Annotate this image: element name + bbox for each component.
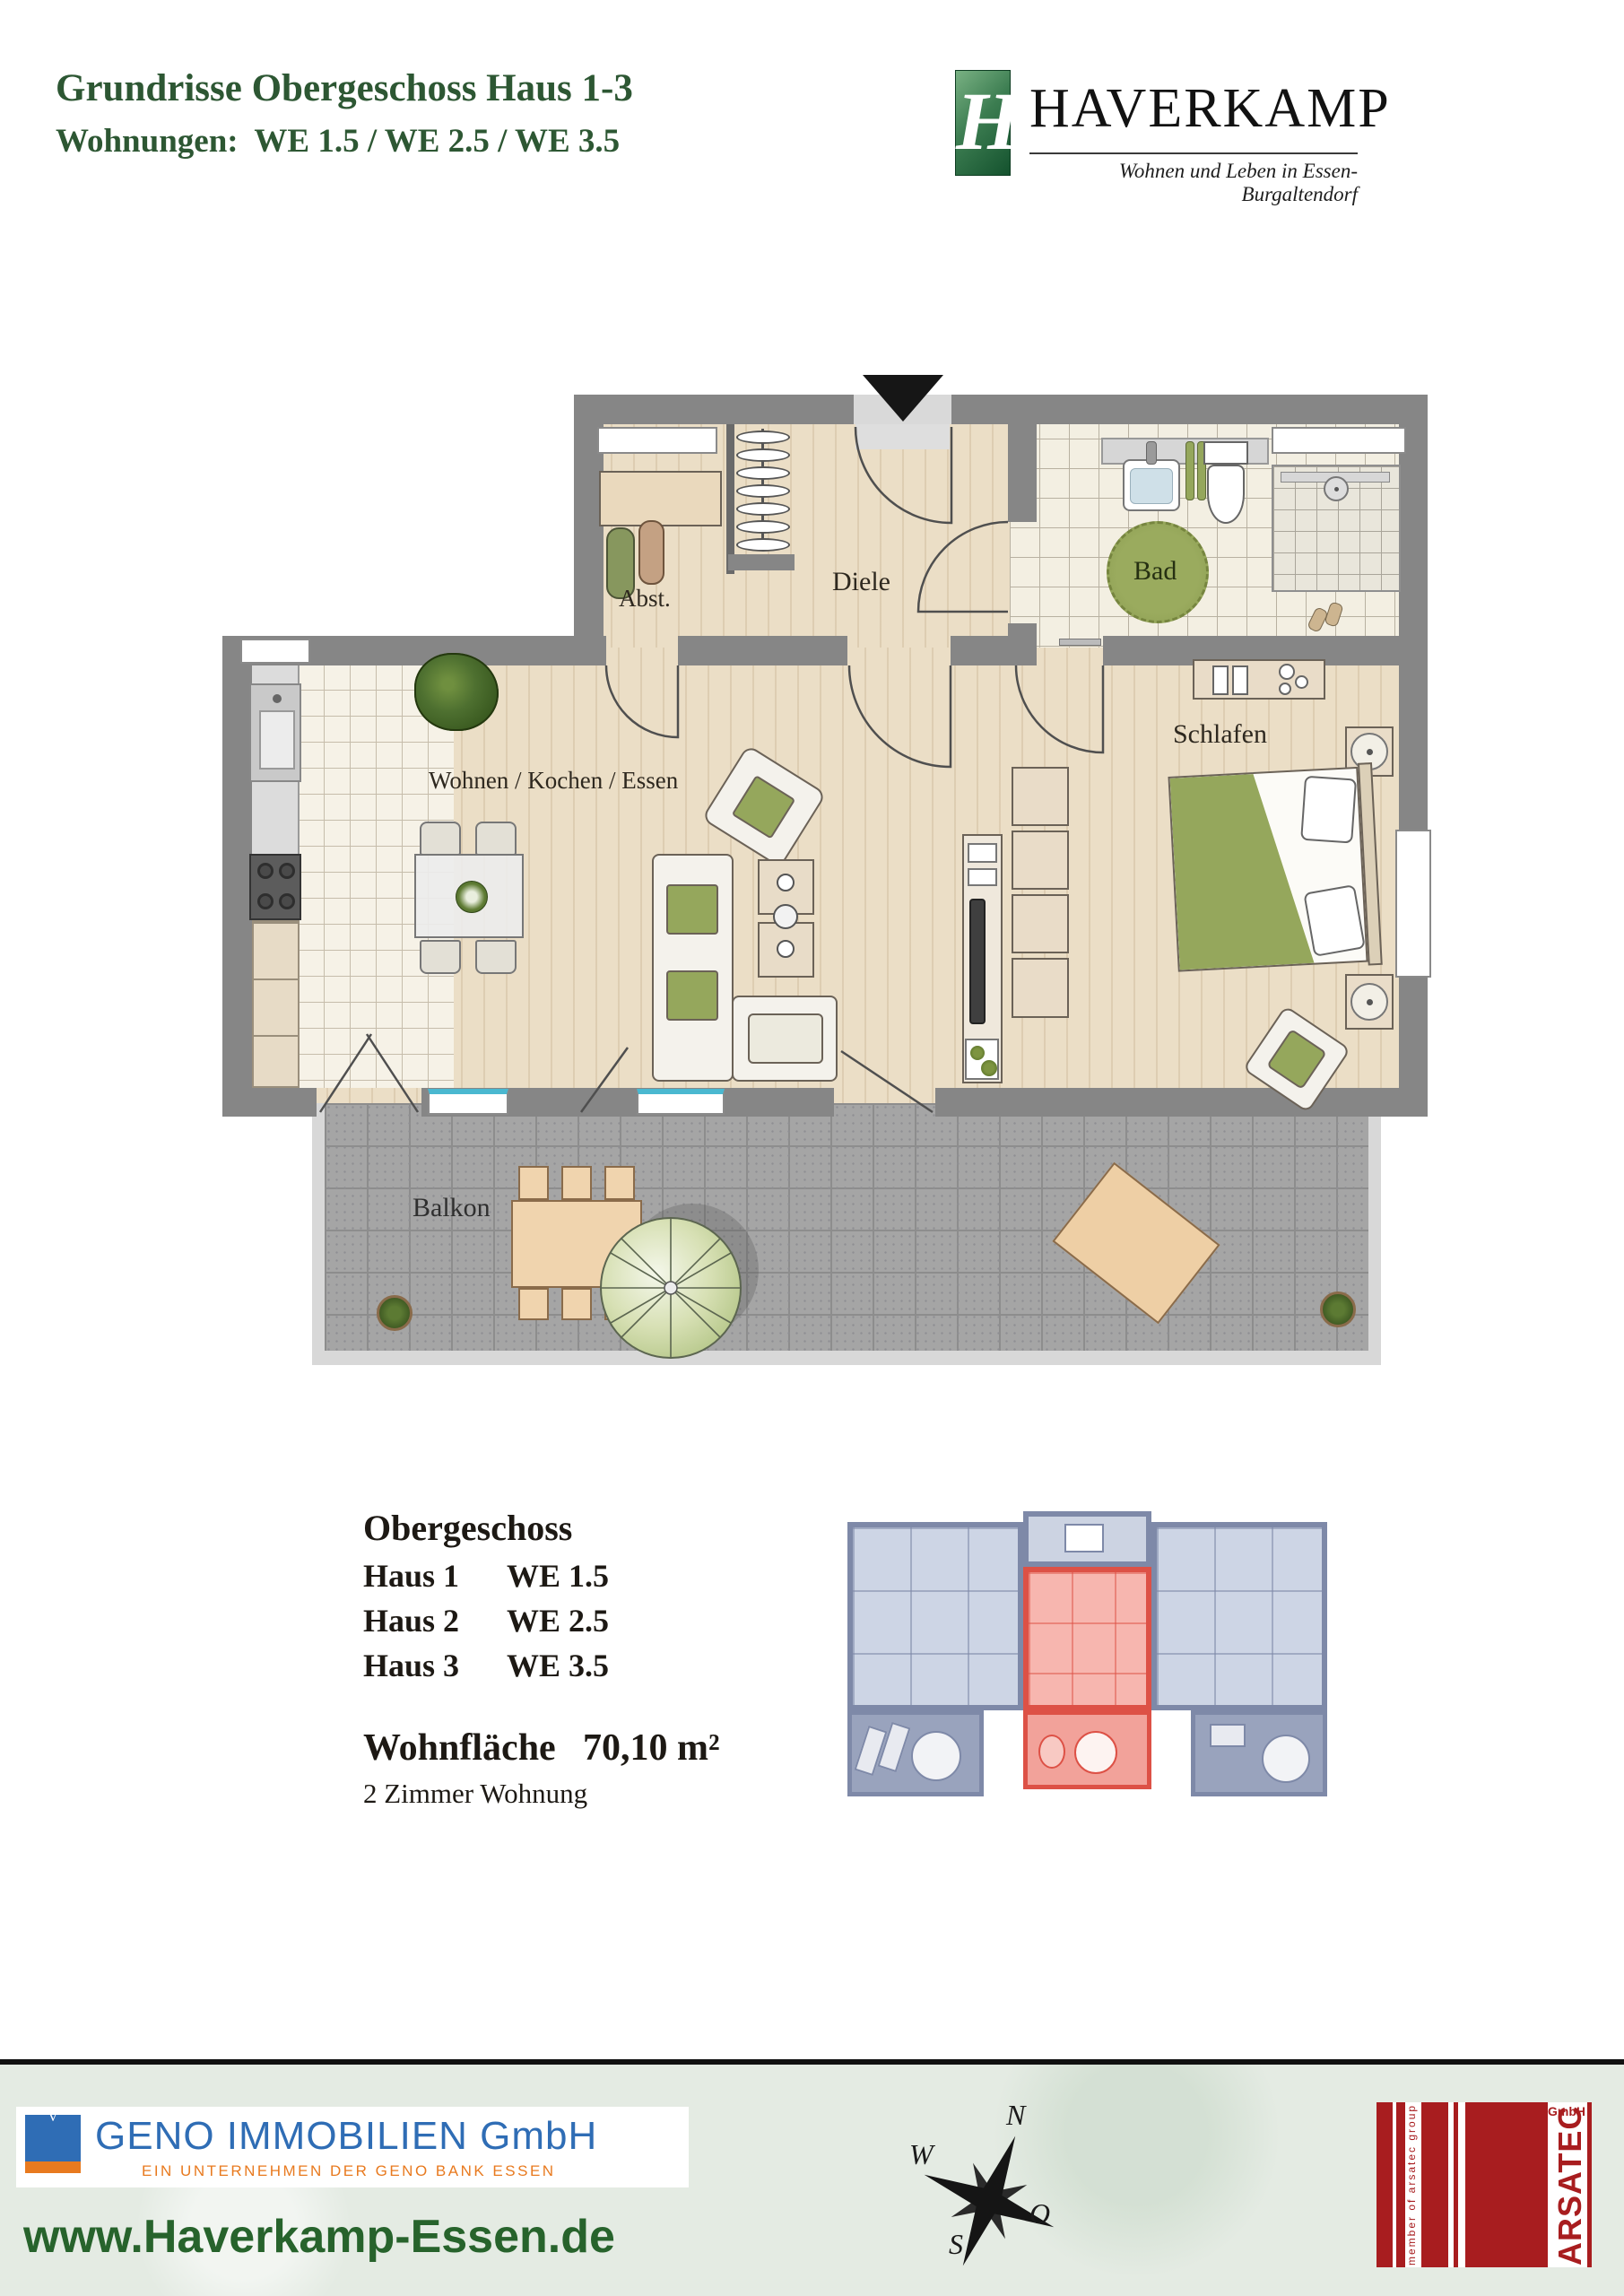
floor-heading: Obergeschoss bbox=[363, 1507, 572, 1549]
compass-n: N bbox=[1006, 2099, 1025, 2132]
geno-bank-underline bbox=[25, 2161, 81, 2173]
arsatec-member-text: member of arsatec group bbox=[1405, 2102, 1421, 2267]
arsatec-wordmark: ARSATEC bbox=[1551, 2122, 1589, 2266]
overview-balcony-left bbox=[847, 1710, 984, 1796]
details-block: Obergeschoss Haus 1 WE 1.5 Haus 2 WE 2.5… bbox=[363, 1507, 829, 1812]
compass-w: W bbox=[909, 2138, 934, 2171]
apartment-type: 2 Zimmer Wohnung bbox=[363, 1778, 587, 1810]
room-label-diele: Diele bbox=[832, 567, 890, 597]
arsatec-bar bbox=[1396, 2102, 1405, 2267]
geno-bank-v: V bbox=[25, 2109, 81, 2126]
brochure-page: Grundrisse Obergeschoss Haus 1-3 Wohnung… bbox=[0, 0, 1624, 2296]
room-label-abst: Abst. bbox=[619, 585, 671, 613]
overview-stairwell bbox=[1023, 1511, 1151, 1567]
area-label: Wohnfläche bbox=[363, 1726, 556, 1770]
overview-table bbox=[1038, 1735, 1065, 1769]
overview-parasol-icon bbox=[911, 1731, 961, 1781]
arsatec-bar bbox=[1458, 2102, 1465, 2267]
unit-we: WE 2.5 bbox=[507, 1602, 609, 1639]
parasol-icon bbox=[601, 1204, 759, 1358]
website-link[interactable]: www.Haverkamp-Essen.de bbox=[23, 2210, 615, 2264]
arsatec-bar bbox=[1465, 2102, 1548, 2267]
unit-code: WE 2.5 bbox=[507, 1603, 609, 1639]
plan-linework bbox=[0, 0, 1624, 2296]
arsatec-wordmark-col: GmbH ARSATEC bbox=[1548, 2102, 1587, 2267]
unit-house: Haus 3 bbox=[363, 1648, 459, 1683]
room-label-balkon: Balkon bbox=[413, 1193, 491, 1223]
unit-row: Haus 2 bbox=[363, 1602, 459, 1639]
unit-code: WE 1.5 bbox=[507, 1558, 609, 1594]
overview-wing-left bbox=[847, 1522, 1023, 1710]
overview-highlight-apartment bbox=[1023, 1567, 1151, 1710]
overview-elevator bbox=[1064, 1524, 1104, 1552]
floorplan: Abst. Diele Bad Schlafen Wohnen / Kochen… bbox=[0, 0, 1624, 2296]
compass-rose: N W O S bbox=[888, 2083, 1103, 2280]
geno-tagline: EIN UNTERNEHMEN DER GENO BANK ESSEN bbox=[142, 2162, 556, 2180]
arsatec-bar bbox=[1421, 2102, 1448, 2267]
entrance-arrow-icon bbox=[863, 375, 943, 422]
compass-o: O bbox=[1029, 2197, 1050, 2231]
overview-wing-right bbox=[1151, 1522, 1327, 1710]
unit-we: WE 1.5 bbox=[507, 1557, 609, 1595]
overview-table bbox=[1210, 1724, 1246, 1747]
room-label-wohnen: Wohnen / Kochen / Essen bbox=[429, 767, 678, 795]
geno-logo: V GENO IMMOBILIEN GmbH EIN UNTERNEHMEN D… bbox=[16, 2107, 689, 2187]
unit-code: WE 3.5 bbox=[507, 1648, 609, 1683]
overview-balcony-center bbox=[1023, 1710, 1151, 1789]
overview-parasol-icon bbox=[1262, 1735, 1310, 1783]
compass-s: S bbox=[949, 2228, 963, 2261]
area-value: 70,10 m² bbox=[583, 1726, 720, 1770]
unit-house: Haus 1 bbox=[363, 1558, 459, 1594]
unit-house: Haus 2 bbox=[363, 1603, 459, 1639]
overview-parasol-icon bbox=[1074, 1731, 1117, 1774]
geno-name: GENO IMMOBILIEN GmbH bbox=[95, 2114, 597, 2159]
arsatec-logo: member of arsatec group GmbH ARSATEC bbox=[1376, 2102, 1592, 2267]
room-label-schlafen: Schlafen bbox=[1173, 719, 1267, 750]
footer: V GENO IMMOBILIEN GmbH EIN UNTERNEHMEN D… bbox=[0, 2059, 1624, 2296]
arsatec-bar bbox=[1376, 2102, 1393, 2267]
geno-bank-icon: V bbox=[25, 2115, 81, 2161]
overview-balcony-right bbox=[1191, 1710, 1327, 1796]
compass-star-icon bbox=[888, 2083, 1103, 2280]
unit-we: WE 3.5 bbox=[507, 1647, 609, 1684]
overview-plan bbox=[847, 1511, 1327, 1812]
unit-row: Haus 3 bbox=[363, 1647, 459, 1684]
unit-row: Haus 1 bbox=[363, 1557, 459, 1595]
room-label-bad: Bad bbox=[1133, 556, 1177, 587]
